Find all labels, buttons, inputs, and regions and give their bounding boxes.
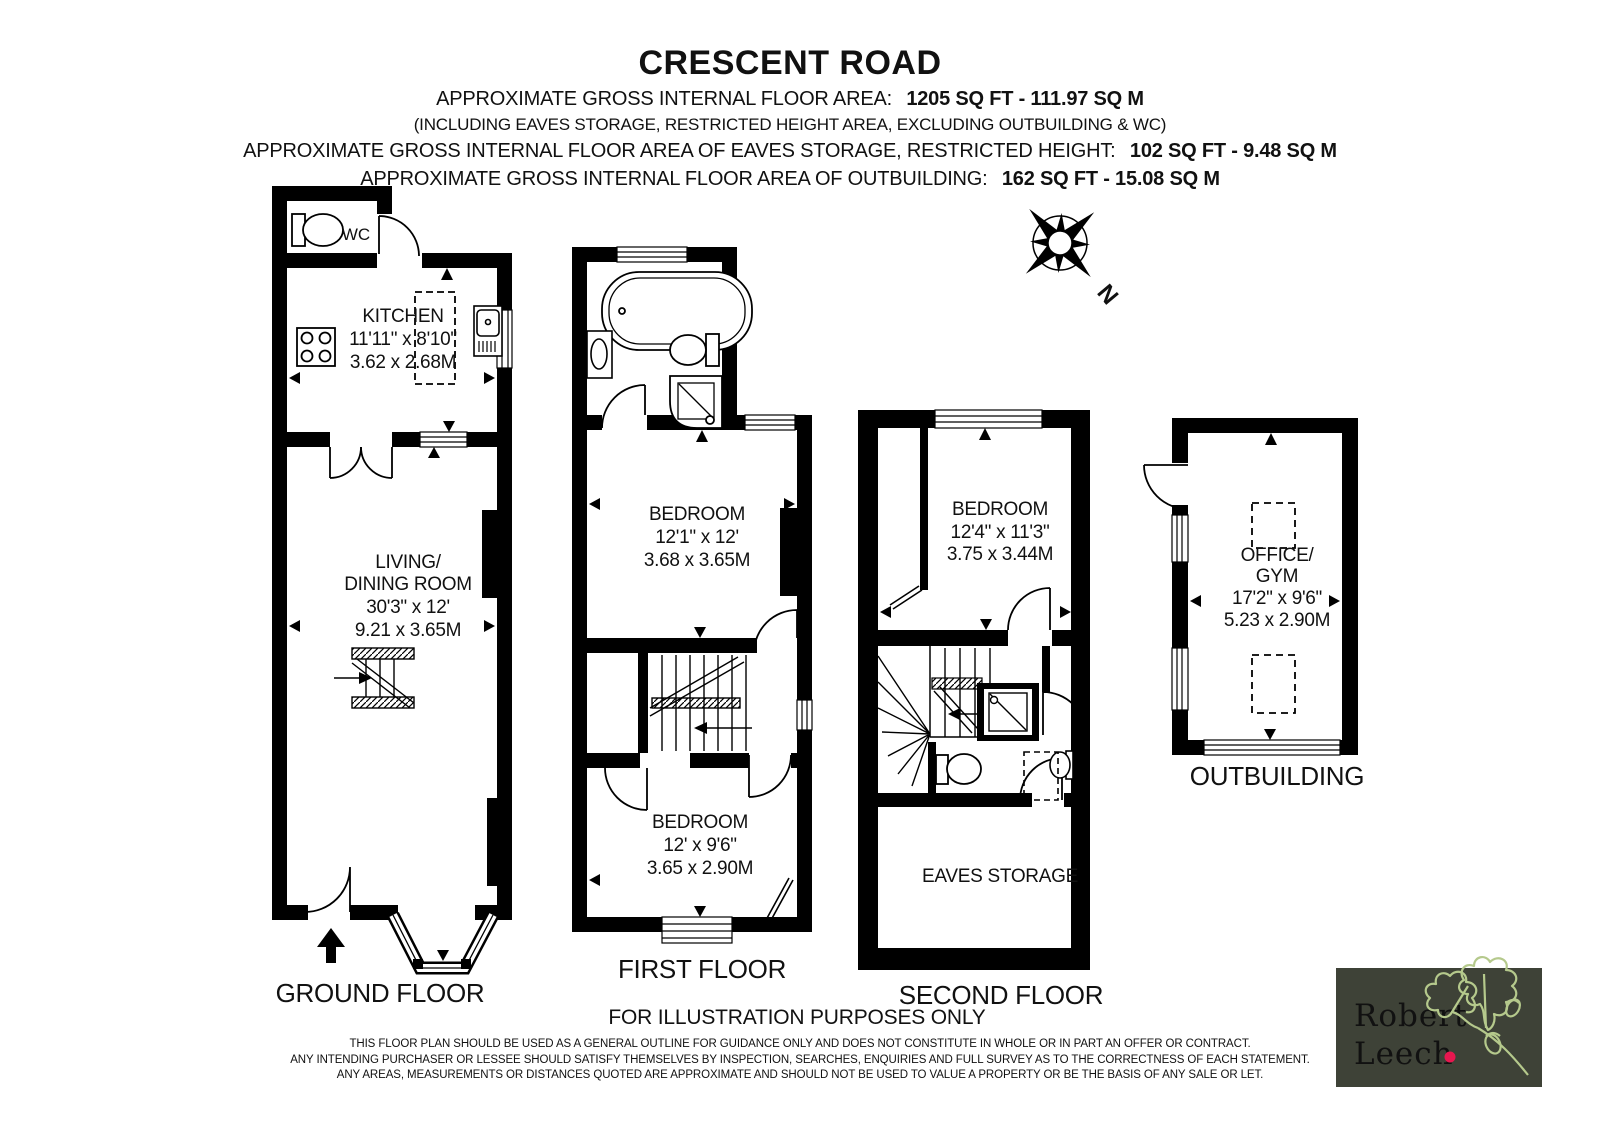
wc-toilet xyxy=(292,214,343,246)
second-bedroom-metric: 3.75 x 3.44M xyxy=(947,544,1053,565)
disclaimer-line-2: ANY INTENDING PURCHASER OR LESSEE SHOULD… xyxy=(20,1053,1580,1069)
ground-floor-plan: WC KITCHEN 11'11" x 8'10" 3.62 x 2.68M L… xyxy=(272,186,512,1008)
shower-cubicle xyxy=(977,683,1039,741)
floorplan-drawing: WC KITCHEN 11'11" x 8'10" 3.62 x 2.68M L… xyxy=(0,0,1600,1131)
living-imperial: 30'3" x 12' xyxy=(366,597,450,618)
second-floor-sink xyxy=(1050,751,1073,779)
bedroom2-name: BEDROOM xyxy=(652,812,748,833)
office-name-1: OFFICE/ xyxy=(1241,545,1315,566)
bedroom2-metric: 3.65 x 2.90M xyxy=(647,858,753,879)
disclaimer-line-1: THIS FLOOR PLAN SHOULD BE USED AS A GENE… xyxy=(20,1037,1580,1053)
bedroom2-imperial: 12' x 9'6" xyxy=(663,835,736,856)
bedroom1-metric: 3.68 x 3.65M xyxy=(644,550,750,571)
first-bedroom1-label: BEDROOM 12'1" x 12' 3.68 x 3.65M xyxy=(644,504,750,571)
kitchen-name: KITCHEN xyxy=(362,306,443,327)
first-floor-label: FIRST FLOOR xyxy=(618,954,786,984)
second-bedroom-imperial: 12'4" x 11'3" xyxy=(951,522,1050,543)
eaves-storage-label: EAVES STORAGE xyxy=(922,866,1078,887)
second-floor-toilet xyxy=(936,754,981,784)
kitchen-hob xyxy=(297,328,335,366)
ground-floor-stairs xyxy=(334,648,414,708)
outbuilding-plan: OFFICE/ GYM 17'2" x 9'6" 5.23 x 2.90M OU… xyxy=(1144,418,1364,791)
kitchen-metric: 3.62 x 2.68M xyxy=(350,352,456,373)
corner-shower xyxy=(670,376,722,428)
disclaimer: THIS FLOOR PLAN SHOULD BE USED AS A GENE… xyxy=(20,1037,1580,1084)
office-gym-label: OFFICE/ GYM 17'2" x 9'6" 5.23 x 2.90M xyxy=(1224,545,1330,631)
illustration-note: FOR ILLUSTRATION PURPOSES ONLY xyxy=(0,1006,1594,1030)
bedroom1-imperial: 12'1" x 12' xyxy=(655,527,739,548)
disclaimer-line-3: ANY AREAS, MEASUREMENTS OR DISTANCES QUO… xyxy=(20,1068,1580,1084)
first-floor-plan: BEDROOM 12'1" x 12' 3.68 x 3.65M BEDROOM… xyxy=(572,247,812,984)
kitchen-imperial: 11'11" x 8'10" xyxy=(349,329,457,350)
compass-rose-icon: N xyxy=(995,178,1125,310)
bathroom-toilet xyxy=(670,334,719,366)
outbuilding-label: OUTBUILDING xyxy=(1190,761,1364,791)
living-metric: 9.21 x 3.65M xyxy=(355,620,461,641)
first-floor-stairs xyxy=(650,655,752,751)
first-bedroom2-label: BEDROOM 12' x 9'6" 3.65 x 2.90M xyxy=(647,812,753,879)
office-imperial: 17'2" x 9'6" xyxy=(1232,588,1322,609)
living-name-2: DINING ROOM xyxy=(344,574,472,595)
bathroom-sink xyxy=(587,331,612,378)
bedroom1-name: BEDROOM xyxy=(649,504,745,525)
compass-north-label: N xyxy=(1091,279,1123,310)
second-bedroom-name: BEDROOM xyxy=(952,499,1048,520)
kitchen-label: KITCHEN 11'11" x 8'10" 3.62 x 2.68M xyxy=(349,306,457,373)
entrance-arrow-icon xyxy=(317,928,345,963)
ground-floor-label: GROUND FLOOR xyxy=(276,978,485,1008)
kitchen-sink xyxy=(474,306,502,356)
second-floor-plan: BEDROOM 12'4" x 11'3" 3.75 x 3.44M EAVES… xyxy=(858,410,1103,1010)
office-name-2: GYM xyxy=(1256,566,1298,587)
living-name-1: LIVING/ xyxy=(375,552,441,573)
office-metric: 5.23 x 2.90M xyxy=(1224,610,1330,631)
outbuilding-door-opening xyxy=(1172,463,1188,505)
second-floor-windows xyxy=(935,410,1042,428)
floorplan-document: CRESCENT ROAD APPROXIMATE GROSS INTERNAL… xyxy=(0,0,1600,1131)
wc-label: WC xyxy=(342,225,370,244)
second-bedroom-label: BEDROOM 12'4" x 11'3" 3.75 x 3.44M xyxy=(947,499,1053,565)
living-room-label: LIVING/ DINING ROOM 30'3" x 12' 9.21 x 3… xyxy=(344,552,472,641)
